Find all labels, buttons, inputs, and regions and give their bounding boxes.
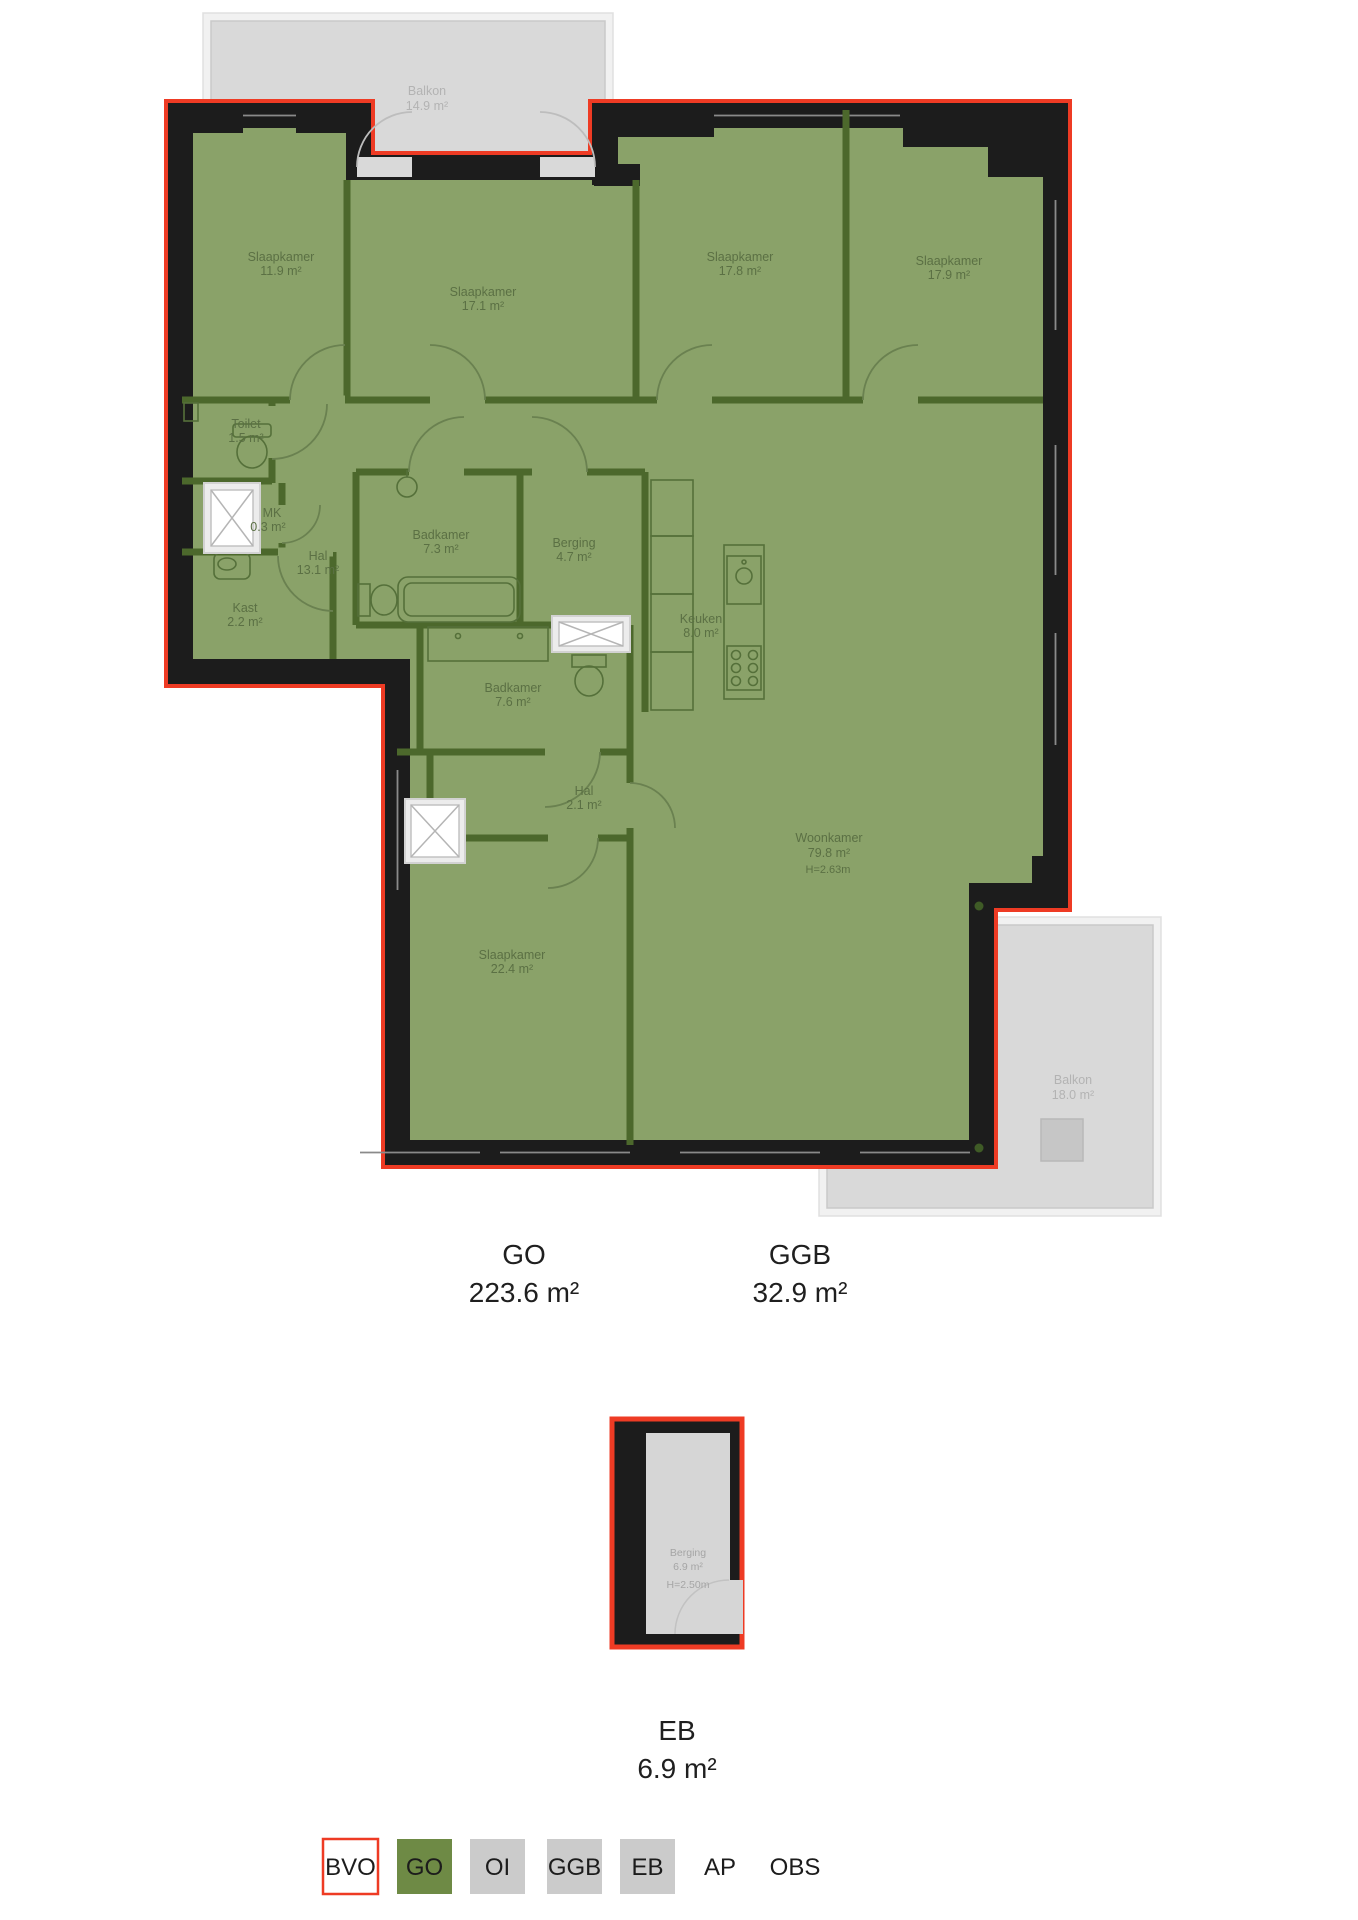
label-badkamer1-area: 7.3 m² [423,542,458,556]
corner-dot [975,902,984,911]
label-eb-berging-height: H=2.50m [667,1579,710,1591]
label-woonkamer-area: 79.8 m² [808,846,850,860]
eb-total-label: EB [658,1715,695,1746]
area-summary: GO 223.6 m² GGB 32.9 m² [469,1239,848,1308]
shaft-icon [552,616,630,652]
shaft-icon [204,483,260,553]
label-kast-area: 2.2 m² [227,615,262,629]
label-eb-berging-area: 6.9 m² [673,1561,703,1573]
label-toilet-name: Toilet [231,417,261,431]
ggb-total-label: GGB [769,1239,831,1270]
floorplan-page: Balkon 14.9 m² Slaapkamer 11.9 m² Slaapk… [0,0,1358,1920]
label-slaapkamer4-area: 17.9 m² [928,268,970,282]
eb-interior [646,1433,730,1634]
label-balkon-bottom-name: Balkon [1054,1073,1092,1087]
label-toilet-area: 1.5 m² [228,431,263,445]
eb-door-gap [727,1580,743,1634]
label-berging-area: 4.7 m² [556,550,591,564]
label-slaapkamer5-area: 22.4 m² [491,962,533,976]
eb-storage-block: Berging 6.9 m² H=2.50m [612,1419,743,1647]
label-balkon-bottom-area: 18.0 m² [1052,1088,1094,1102]
eb-total-value: 6.9 m² [637,1753,716,1784]
label-slaapkamer2-name: Slaapkamer [450,285,517,299]
label-balkon-top-area: 14.9 m² [406,99,448,113]
label-woonkamer-height: H=2.63m [806,864,851,876]
label-slaapkamer1-area: 11.9 m² [260,264,301,278]
label-badkamer2-area: 7.6 m² [495,695,530,709]
go-total-label: GO [502,1239,546,1270]
legend-label-eb: EB [631,1854,663,1881]
label-kast-name: Kast [232,601,258,615]
label-slaapkamer3-name: Slaapkamer [707,250,774,264]
label-berging-name: Berging [552,536,595,550]
label-hal1-name: Hal [309,549,328,563]
label-hal2-area: 2.1 m² [566,798,601,812]
planter-icon [1041,1119,1083,1161]
corner-dot [975,1144,984,1153]
label-hal1-area: 13.1 m² [297,563,339,577]
legend-label-ap: AP [704,1854,736,1881]
label-keuken-area: 8.0 m² [683,626,718,640]
label-slaapkamer5-name: Slaapkamer [479,948,546,962]
legend-label-bvo: BVO [325,1854,376,1881]
ggb-total-value: 32.9 m² [753,1277,848,1308]
legend: BVO GO OI GGB EB AP OBS [323,1839,820,1894]
label-keuken-name: Keuken [680,612,722,626]
label-slaapkamer3-area: 17.8 m² [719,264,761,278]
eb-summary: EB 6.9 m² [637,1715,716,1784]
legend-label-ggb: GGB [548,1854,601,1881]
label-mk-area: 0.3 m² [250,520,285,534]
label-badkamer1-name: Badkamer [413,528,470,542]
label-eb-berging-name: Berging [670,1547,706,1559]
legend-label-go: GO [406,1854,443,1881]
label-slaapkamer1-name: Slaapkamer [248,250,315,264]
legend-label-obs: OBS [770,1854,821,1881]
legend-label-oi: OI [485,1854,510,1881]
label-slaapkamer4-name: Slaapkamer [916,254,983,268]
go-total-value: 223.6 m² [469,1277,580,1308]
label-slaapkamer2-area: 17.1 m² [462,299,504,313]
label-balkon-top-name: Balkon [408,84,446,98]
floorplan-svg: Balkon 14.9 m² Slaapkamer 11.9 m² Slaapk… [0,0,1358,1920]
label-badkamer2-name: Badkamer [485,681,542,695]
label-mk-name: MK [263,506,282,520]
shaft-icon [405,799,465,863]
label-woonkamer-name: Woonkamer [795,831,862,845]
label-hal2-name: Hal [575,784,594,798]
